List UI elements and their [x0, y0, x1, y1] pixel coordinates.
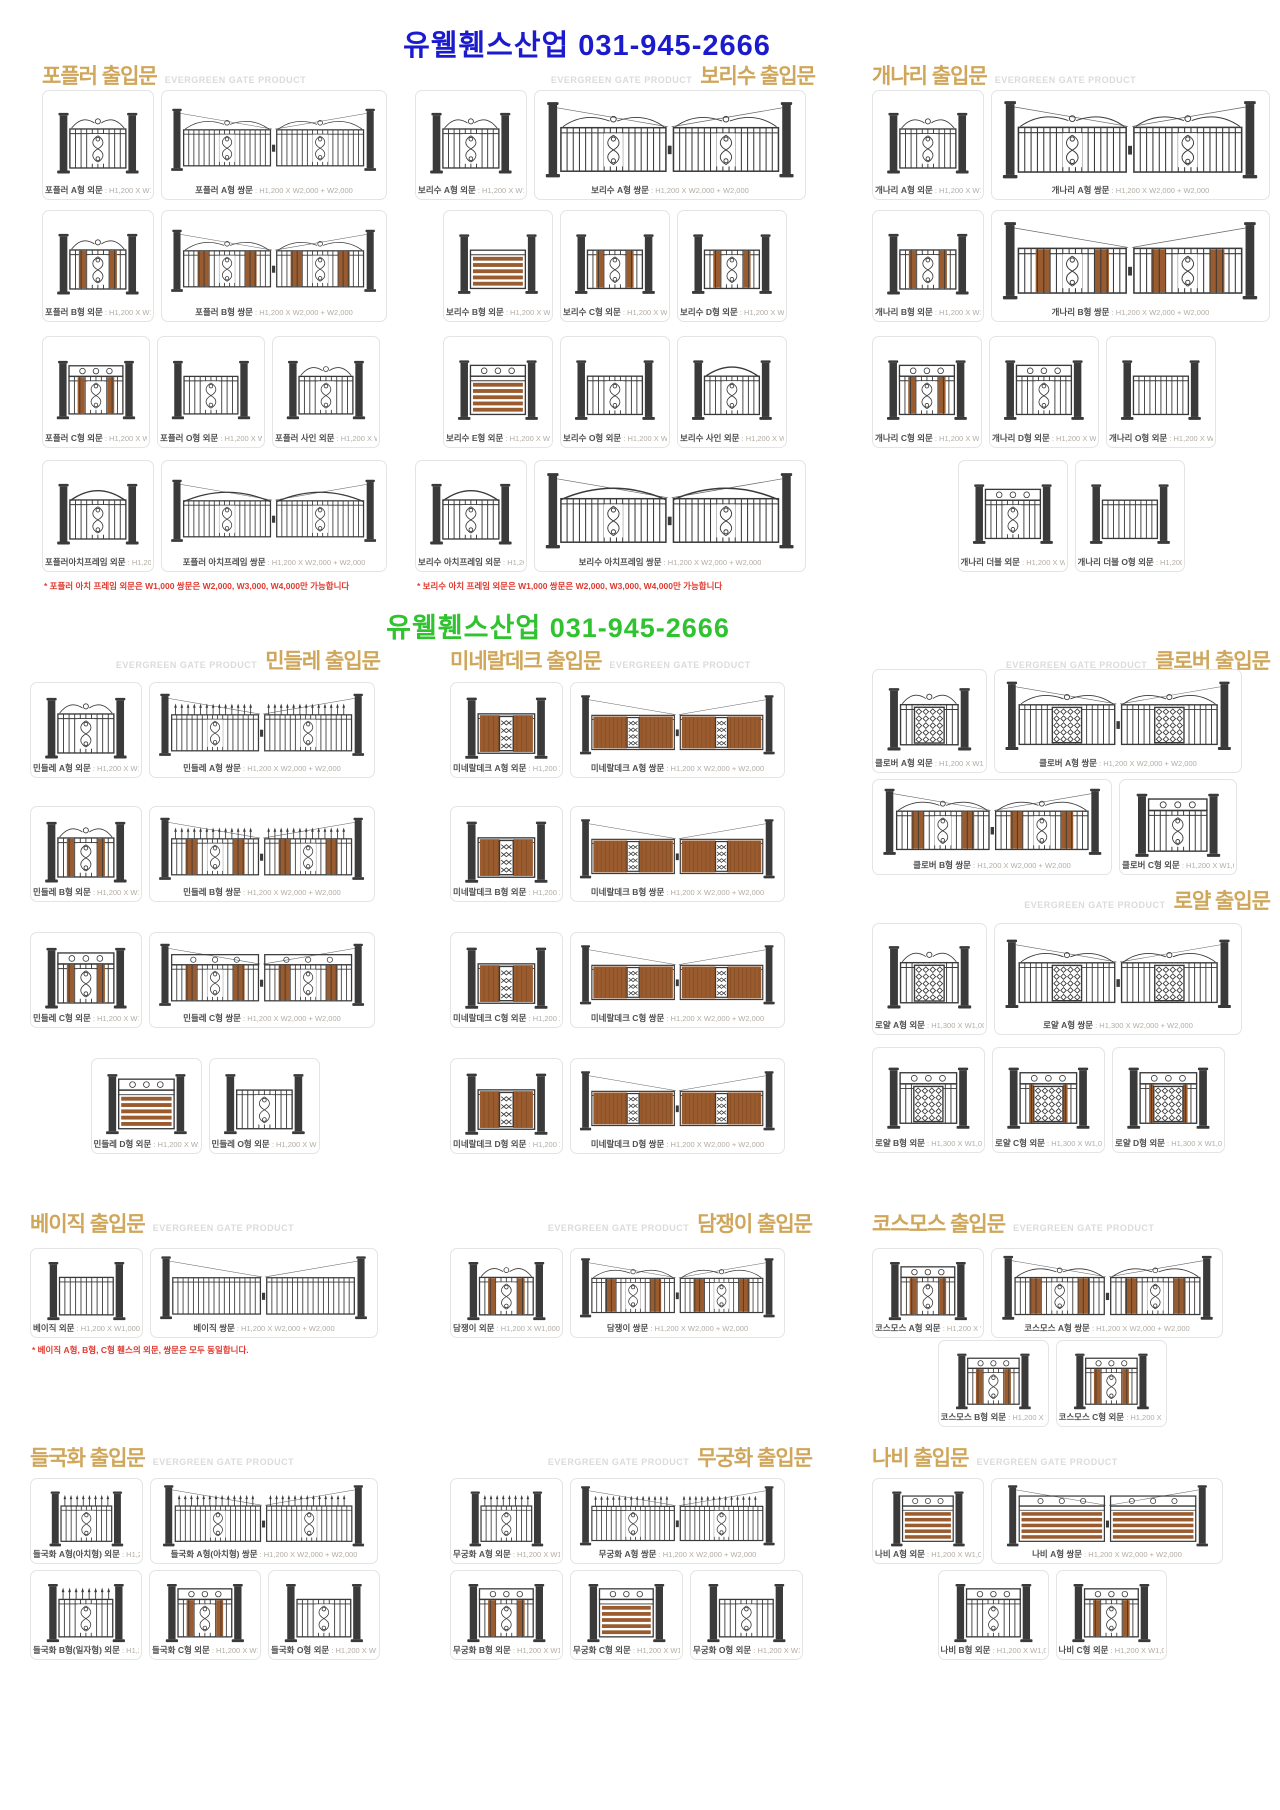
- product-caption: 베이직 외문 : H1,200 X W1,000: [33, 1323, 140, 1334]
- product-card: 담쟁이 외문 : H1,200 X W1,000: [450, 1248, 563, 1338]
- product-card: 미네랄데크 B형 쌍문 : H1,200 X W2,000 + W2,000: [570, 806, 785, 902]
- product-caption: 포플러 O형 외문 : H1,200 X W1,000: [160, 433, 262, 444]
- gate-illustration: [695, 1575, 798, 1645]
- product-caption: 포플러 B형 쌍문 : H1,200 X W2,000 + W2,000: [195, 307, 353, 318]
- product-dimension: : H1,200 X W1,000: [75, 1324, 140, 1333]
- section-header: 개나리 출입문EVERGREEN GATE PRODUCT: [872, 60, 1270, 90]
- product-caption: 개나리 C형 외문 : H1,200 X W1,000: [875, 433, 979, 444]
- gate-drawing: [162, 341, 260, 433]
- product-name: 미네랄데크 B형 쌍문: [591, 887, 664, 897]
- product-dimension: : H1,200 X W2,000 + W2,000: [664, 1014, 764, 1023]
- product-row: 코스모스 A형 외문 : H1,200 X W1,000코스모스 A형 쌍문 :…: [872, 1248, 1232, 1338]
- product-dimension: : H1,200 X W1,000: [103, 186, 151, 195]
- brand-label: EVERGREEN GATE PRODUCT: [548, 1457, 689, 1467]
- gate-drawing: [1111, 341, 1211, 433]
- gate-illustration: [156, 687, 367, 763]
- gate-illustration: [448, 215, 548, 307]
- product-caption: 민들레 A형 외문 : H1,200 X W1,000: [33, 763, 139, 774]
- product-card: 보리수 O형 외문 : H1,200 X W1,000: [560, 336, 670, 448]
- gate-illustration: [1124, 784, 1232, 860]
- product-dimension: : H1,200 X W1,000: [511, 1646, 560, 1655]
- section-title: 들국화 출입문: [30, 1442, 145, 1472]
- product-row: 로얄 A형 외문 : H1,300 X W1,000로얄 A형 쌍문 : H1,…: [872, 923, 1270, 1035]
- gate-illustration: [168, 215, 379, 307]
- catalog-page: 유웰휀스산업 031-945-2666 유웰휀스산업 031-945-2666 …: [0, 0, 1280, 1810]
- product-dimension: : H1,200 X W2,000 + W2,000: [664, 1140, 764, 1149]
- product-card: 보리수 C형 외문 : H1,200 X W1,000: [560, 210, 670, 322]
- gate-illustration: [1061, 1575, 1162, 1645]
- gate-drawing: [156, 687, 367, 763]
- product-dimension: : H1,200 X W2,000 + W2,000: [235, 1324, 335, 1333]
- product-name: 미네랄데크 D형 외문: [453, 1139, 526, 1149]
- gate-illustration: [455, 937, 558, 1013]
- product-card: 보리수 E형 외문 : H1,200 X W1,000: [443, 336, 553, 448]
- product-row: 개나리 B형 외문 : H1,200 X W1,000개나리 B형 쌍문 : H…: [872, 210, 1270, 322]
- gate-drawing: [943, 1345, 1044, 1412]
- product-card: 민들레 C형 외문 : H1,200 X W1,000: [30, 932, 142, 1028]
- section-note: * 베이직 A형, B형, C형 휀스의 외문, 쌍문은 모두 동일합니다.: [32, 1344, 249, 1356]
- gate-drawing: [455, 1253, 558, 1323]
- product-caption: 포플러 사인 외문 : H1,200 X W1,000: [275, 433, 377, 444]
- gate-drawing: [35, 1483, 138, 1549]
- product-row: 클로버 B형 쌍문 : H1,200 X W2,000 + W2,000클로버 …: [872, 779, 1270, 875]
- product-caption: 미네랄데크 C형 외문 : H1,200 X W1,000: [453, 1013, 560, 1024]
- product-card: 클로버 C형 외문 : H1,200 X W1,000: [1119, 779, 1237, 875]
- product-card: 포플러 사인 외문 : H1,200 X W1,000: [272, 336, 380, 448]
- product-name: 베이직 쌍문: [193, 1323, 234, 1333]
- product-name: 들국화 A형(아치형) 외문: [33, 1549, 120, 1559]
- product-name: 포플러 A형 쌍문: [195, 185, 253, 195]
- product-caption: 보리수 O형 외문 : H1,200 X W1,000: [563, 433, 667, 444]
- gate-drawing: [1080, 465, 1180, 557]
- product-row: 로얄 B형 외문 : H1,300 X W1,000로얄 C형 외문 : H1,…: [872, 1047, 1270, 1153]
- product-name: 담쟁이 쌍문: [607, 1323, 648, 1333]
- product-row: 들국화 A형(아치형) 외문 : H1,200 X W1,000들국화 A형(아…: [30, 1478, 380, 1564]
- section-title: 베이직 출입문: [30, 1208, 145, 1238]
- product-row: 무궁화 B형 외문 : H1,200 X W1,000무궁화 C형 외문 : H…: [450, 1570, 812, 1660]
- section-title: 로얄 출입문: [1174, 885, 1270, 915]
- gate-drawing: [577, 1483, 778, 1549]
- gate-drawing: [214, 1063, 315, 1139]
- product-name: 들국화 A형(아치형) 쌍문: [171, 1549, 258, 1559]
- gate-drawing: [877, 674, 982, 758]
- product-dimension: : H1,200 X W2,000 + W2,000: [266, 558, 366, 567]
- product-card: 민들레 A형 외문 : H1,200 X W1,000: [30, 682, 142, 778]
- product-dimension: : H1,200 X W1,000: [91, 764, 139, 773]
- gate-drawing: [1061, 1345, 1162, 1412]
- product-caption: 미네랄데크 D형 쌍문 : H1,200 X W2,000 + W2,000: [591, 1139, 764, 1150]
- gate-drawing: [999, 1253, 1216, 1323]
- gate-drawing: [448, 215, 548, 307]
- product-dimension: : H1,200 X W1,000: [103, 308, 151, 317]
- section-header: 포플러 출입문EVERGREEN GATE PRODUCT: [42, 60, 392, 90]
- product-name: 민들레 D형 외문: [94, 1139, 152, 1149]
- product-card: 나비 A형 쌍문 : H1,200 X W2,000 + W2,000: [991, 1478, 1223, 1564]
- gate-illustration: [455, 811, 558, 887]
- product-name: 개나리 B형 쌍문: [1052, 307, 1110, 317]
- product-card: 민들레 D형 외문 : H1,200 X W1,000: [91, 1058, 202, 1154]
- product-dimension: : H1,200 X W2,000 + W2,000: [1090, 1324, 1190, 1333]
- gate-drawing: [157, 1253, 370, 1323]
- gate-illustration: [542, 95, 797, 185]
- product-name: 로얄 B형 외문: [875, 1138, 925, 1148]
- product-card: 개나리 더블 O형 외문 : H1,200 X W1,000: [1075, 460, 1185, 572]
- product-dimension: : H1,200 X W1,000: [270, 1140, 317, 1149]
- gate-illustration: [420, 465, 522, 557]
- gate-drawing: [1002, 674, 1234, 758]
- product-card: 미네랄데크 C형 쌍문 : H1,200 X W2,000 + W2,000: [570, 932, 785, 1028]
- product-dimension: : H1,200 X W2,000 + W2,000: [662, 558, 762, 567]
- product-card: 무궁화 C형 외문 : H1,200 X W1,000: [570, 1570, 683, 1660]
- gate-drawing: [877, 928, 982, 1020]
- product-name: 개나리 O형 외문: [1109, 433, 1167, 443]
- product-dimension: : H1,200 X W1,000: [933, 308, 981, 317]
- product-card: 개나리 A형 외문 : H1,200 X W1,000: [872, 90, 984, 200]
- product-name: 무궁화 B형 외문: [453, 1645, 511, 1655]
- middle-banner: 유웰휀스산업 031-945-2666: [382, 606, 734, 645]
- section-header: EVERGREEN GATE PRODUCT담쟁이 출입문: [450, 1208, 812, 1238]
- product-card: 민들레 A형 쌍문 : H1,200 X W2,000 + W2,000: [149, 682, 375, 778]
- product-card: 미네랄데크 B형 외문 : H1,200 X W1,000: [450, 806, 563, 902]
- gate-drawing: [455, 1063, 558, 1139]
- product-card: 담쟁이 쌍문 : H1,200 X W2,000 + W2,000: [570, 1248, 785, 1338]
- product-dimension: : H1,200 X W1,000: [504, 308, 550, 317]
- product-caption: 로얄 D형 외문 : H1,300 X W1,000: [1115, 1138, 1222, 1149]
- product-name: 로얄 A형 외문: [875, 1020, 925, 1030]
- brand-label: EVERGREEN GATE PRODUCT: [1013, 1223, 1154, 1233]
- brand-label: EVERGREEN GATE PRODUCT: [116, 660, 257, 670]
- product-row: 나비 A형 외문 : H1,200 X W1,000나비 A형 쌍문 : H1,…: [872, 1478, 1232, 1564]
- gate-drawing: [168, 215, 379, 307]
- product-dimension: : H1,200 X W1,000: [1124, 1413, 1163, 1422]
- section-title: 포플러 출입문: [42, 60, 157, 90]
- gate-illustration: [877, 928, 982, 1020]
- product-row: 담쟁이 외문 : H1,200 X W1,000담쟁이 쌍문 : H1,200 …: [450, 1248, 812, 1338]
- gate-drawing: [35, 1253, 138, 1323]
- gate-drawing: [577, 937, 778, 1013]
- product-card: 미네랄데크 C형 외문 : H1,200 X W1,000: [450, 932, 563, 1028]
- brand-label: EVERGREEN GATE PRODUCT: [995, 75, 1136, 85]
- product-caption: 개나리 O형 외문 : H1,200 X W1,000: [1109, 433, 1213, 444]
- product-row: 나비 B형 외문 : H1,200 X W1,000나비 C형 외문 : H1,…: [872, 1570, 1232, 1660]
- gate-illustration: [577, 811, 778, 887]
- product-name: 보리수 O형 외문: [563, 433, 621, 443]
- product-caption: 보리수 아치프레임 외문 : H1,200 X W1,000: [418, 557, 524, 568]
- product-card: 무궁화 B형 외문 : H1,200 X W1,000: [450, 1570, 563, 1660]
- product-name: 코스모스 C형 외문: [1059, 1412, 1125, 1422]
- product-dimension: : H1,200 X W1,000: [526, 764, 560, 773]
- product-row: 포플러 B형 외문 : H1,200 X W1,000포플러 B형 쌍문 : H…: [42, 210, 392, 322]
- product-card: 보리수 B형 외문 : H1,200 X W1,000: [443, 210, 553, 322]
- product-card: 들국화 A형(아치형) 쌍문 : H1,200 X W2,000 + W2,00…: [150, 1478, 378, 1564]
- gate-illustration: [577, 1483, 778, 1549]
- product-name: 무궁화 O형 외문: [693, 1645, 751, 1655]
- product-name: 보리수 A형 외문: [418, 185, 476, 195]
- product-dimension: : H1,200 X W1,000: [1050, 434, 1096, 443]
- product-name: 민들레 O형 외문: [212, 1139, 270, 1149]
- gate-drawing: [877, 95, 979, 185]
- gate-illustration: [35, 1253, 138, 1323]
- product-card: 미네랄데크 A형 외문 : H1,200 X W1,000: [450, 682, 563, 778]
- product-row: 포플러 C형 외문 : H1,200 X W1,000포플러 O형 외문 : H…: [42, 336, 392, 448]
- product-dimension: : H1,200 X W1,000: [503, 434, 550, 443]
- product-caption: 보리수 사인 외문 : H1,200 X W1,000: [680, 433, 784, 444]
- section-header: 들국화 출입문EVERGREEN GATE PRODUCT: [30, 1442, 380, 1472]
- product-card: 포플러 C형 외문 : H1,200 X W1,000: [42, 336, 150, 448]
- product-card: 미네랄데크 D형 외문 : H1,200 X W1,000: [450, 1058, 563, 1154]
- product-dimension: : H1,200 X W1,000: [526, 1140, 560, 1149]
- gate-drawing: [1002, 928, 1234, 1020]
- product-dimension: : H1,200 X W2,000 + W2,000: [1109, 308, 1209, 317]
- gate-drawing: [420, 95, 522, 185]
- product-row: 보리수 E형 외문 : H1,200 X W1,000보리수 O형 외문 : H…: [415, 336, 815, 448]
- section-header: 미네랄데크 출입문EVERGREEN GATE PRODUCT: [450, 645, 812, 675]
- product-name: 보리수 B형 외문: [446, 307, 504, 317]
- top-banner: 유웰휀스산업 031-945-2666: [375, 22, 799, 64]
- gate-illustration: [47, 215, 149, 307]
- section-title: 민들레 출입문: [265, 645, 380, 675]
- product-name: 로얄 D형 외문: [1115, 1138, 1165, 1148]
- brand-label: EVERGREEN GATE PRODUCT: [1024, 900, 1165, 910]
- product-name: 개나리 더블 O형 외문: [1078, 557, 1154, 567]
- product-caption: 포플러 A형 외문 : H1,200 X W1,000: [45, 185, 151, 196]
- section-title: 개나리 출입문: [872, 60, 987, 90]
- product-caption: 미네랄데크 A형 쌍문 : H1,200 X W2,000 + W2,000: [591, 763, 764, 774]
- section-title: 무궁화 출입문: [697, 1442, 812, 1472]
- product-card: 보리수 A형 쌍문 : H1,200 X W2,000 + W2,000: [534, 90, 806, 200]
- product-name: 보리수 아치프레임 외문: [418, 557, 501, 567]
- gate-illustration: [455, 1483, 558, 1549]
- product-name: 코스모스 B형 외문: [941, 1412, 1007, 1422]
- brand-label: EVERGREEN GATE PRODUCT: [609, 660, 750, 670]
- product-caption: 담쟁이 쌍문 : H1,200 X W2,000 + W2,000: [607, 1323, 748, 1334]
- section-header: EVERGREEN GATE PRODUCT보리수 출입문: [415, 60, 815, 90]
- gate-illustration: [35, 1483, 138, 1549]
- gate-illustration: [880, 784, 1105, 860]
- gate-illustration: [877, 1483, 979, 1549]
- gate-drawing: [877, 341, 977, 433]
- product-caption: 개나리 D형 외문 : H1,200 X W1,000: [992, 433, 1096, 444]
- product-name: 포플러 C형 외문: [45, 433, 103, 443]
- gate-illustration: [999, 1253, 1216, 1323]
- product-caption: 무궁화 C형 외문 : H1,200 X W1,000: [573, 1645, 680, 1656]
- gate-illustration: [96, 1063, 197, 1139]
- gate-illustration: [577, 937, 778, 1013]
- product-row: 무궁화 A형 외문 : H1,200 X W1,000무궁화 A형 쌍문 : H…: [450, 1478, 812, 1564]
- product-name: 개나리 D형 외문: [992, 433, 1050, 443]
- section-note: * 포플러 아치 프레임 외문은 W1,000 쌍문은 W2,000, W3,0…: [44, 580, 349, 592]
- gate-drawing: [1117, 1052, 1220, 1138]
- gate-illustration: [999, 95, 1261, 185]
- gate-drawing: [420, 465, 522, 557]
- gate-drawing: [277, 341, 375, 433]
- product-row: 포플러 A형 외문 : H1,200 X W1,000포플러 A형 쌍문 : H…: [42, 90, 392, 200]
- product-name: 민들레 C형 외문: [33, 1013, 91, 1023]
- product-name: 미네랄데크 C형 외문: [453, 1013, 526, 1023]
- product-dimension: : H1,200 X W1,000: [739, 434, 784, 443]
- product-name: 민들레 A형 쌍문: [183, 763, 241, 773]
- product-card: 보리수 A형 외문 : H1,200 X W1,000: [415, 90, 527, 200]
- product-caption: 보리수 B형 외문 : H1,200 X W1,000: [446, 307, 550, 318]
- section-header: 나비 출입문EVERGREEN GATE PRODUCT: [872, 1442, 1232, 1472]
- product-dimension: : H1,200 X W1,000: [218, 434, 262, 443]
- product-card: 들국화 A형(아치형) 외문 : H1,200 X W1,000: [30, 1478, 143, 1564]
- product-name: 포플러 A형 외문: [45, 185, 103, 195]
- gate-illustration: [877, 674, 982, 758]
- product-dimension: : H1,200 X W1,000: [941, 1324, 981, 1333]
- gate-drawing: [273, 1575, 375, 1645]
- product-name: 개나리 A형 쌍문: [1052, 185, 1110, 195]
- gate-drawing: [682, 341, 782, 433]
- product-dimension: : H1,300 X W1,000: [925, 1021, 984, 1030]
- product-card: 무궁화 A형 쌍문 : H1,200 X W2,000 + W2,000: [570, 1478, 785, 1564]
- product-caption: 클로버 A형 쌍문 : H1,200 X W2,000 + W2,000: [1039, 758, 1197, 769]
- product-row: 민들레 A형 외문 : H1,200 X W1,000민들레 A형 쌍문 : H…: [30, 682, 380, 778]
- product-caption: 무궁화 A형 쌍문 : H1,200 X W2,000 + W2,000: [599, 1549, 757, 1560]
- product-dimension: : H1,200 X W1,000: [933, 759, 984, 768]
- product-caption: 민들레 A형 쌍문 : H1,200 X W2,000 + W2,000: [183, 763, 341, 774]
- product-name: 포플러아치프레임 외문: [45, 557, 126, 567]
- gate-drawing: [999, 1483, 1216, 1549]
- product-name: 클로버 B형 쌍문: [913, 860, 971, 870]
- product-card: 나비 B형 외문 : H1,200 X W1,000: [938, 1570, 1049, 1660]
- product-name: 코스모스 A형 쌍문: [1024, 1323, 1090, 1333]
- product-name: 포플러 사인 외문: [275, 433, 334, 443]
- product-caption: 무궁화 O형 외문 : H1,200 X W1,000: [693, 1645, 800, 1656]
- gate-drawing: [577, 811, 778, 887]
- product-dimension: : H1,200 X W2,000 + W2,000: [664, 764, 764, 773]
- product-name: 무궁화 A형 외문: [453, 1549, 511, 1559]
- product-row: 민들레 C형 외문 : H1,200 X W1,000민들레 C형 쌍문 : H…: [30, 932, 380, 1028]
- product-dimension: : H1,200 X W1,000: [103, 434, 147, 443]
- product-card: 개나리 O형 외문 : H1,200 X W1,000: [1106, 336, 1216, 448]
- product-caption: 로얄 B형 외문 : H1,300 X W1,000: [875, 1138, 982, 1149]
- product-card: 포플러 B형 쌍문 : H1,200 X W2,000 + W2,000: [161, 210, 387, 322]
- product-card: 무궁화 O형 외문 : H1,200 X W1,000: [690, 1570, 803, 1660]
- gate-illustration: [455, 1253, 558, 1323]
- product-dimension: : H1,300 X W2,000 + W2,000: [1093, 1021, 1193, 1030]
- product-dimension: : H1,200 X W1,000: [933, 186, 981, 195]
- product-name: 미네랄데크 A형 쌍문: [591, 763, 664, 773]
- product-row: 베이직 외문 : H1,200 X W1,000베이직 쌍문 : H1,200 …: [30, 1248, 380, 1338]
- product-dimension: : H1,200 X W1,000: [511, 1550, 560, 1559]
- brand-label: EVERGREEN GATE PRODUCT: [153, 1223, 294, 1233]
- product-caption: 코스모스 C형 외문 : H1,200 X W1,000: [1059, 1412, 1164, 1423]
- product-card: 포플러 A형 외문 : H1,200 X W1,000: [42, 90, 154, 200]
- product-caption: 민들레 B형 쌍문 : H1,200 X W2,000 + W2,000: [183, 887, 341, 898]
- product-caption: 미네랄데크 A형 외문 : H1,200 X W1,000: [453, 763, 560, 774]
- product-card: 포플러 아치프레임 쌍문 : H1,200 X W2,000 + W2,000: [161, 460, 387, 572]
- gate-drawing: [877, 215, 979, 307]
- product-caption: 민들레 C형 외문 : H1,200 X W1,000: [33, 1013, 139, 1024]
- product-name: 민들레 A형 외문: [33, 763, 91, 773]
- product-row: 보리수 A형 외문 : H1,200 X W1,000보리수 A형 쌍문 : H…: [415, 90, 815, 200]
- gate-drawing: [877, 1052, 980, 1138]
- gate-illustration: [999, 215, 1261, 307]
- gate-drawing: [157, 1483, 370, 1549]
- product-name: 베이직 외문: [33, 1323, 74, 1333]
- gate-drawing: [168, 465, 379, 557]
- product-name: 포플러 O형 외문: [160, 433, 218, 443]
- product-dimension: : H1,200 X W2,000 + W2,000: [664, 888, 764, 897]
- gate-drawing: [154, 1575, 256, 1645]
- product-card: 로얄 C형 외문 : H1,300 X W1,000: [992, 1047, 1105, 1153]
- gate-illustration: [420, 95, 522, 185]
- product-caption: 베이직 쌍문 : H1,200 X W2,000 + W2,000: [193, 1323, 334, 1334]
- gate-drawing: [168, 95, 379, 185]
- product-card: 민들레 B형 외문 : H1,200 X W1,000: [30, 806, 142, 902]
- product-name: 민들레 B형 외문: [33, 887, 91, 897]
- gate-drawing: [695, 1575, 798, 1645]
- product-dimension: : H1,200 X W1,000: [151, 1140, 198, 1149]
- gate-illustration: [455, 1063, 558, 1139]
- section-header: EVERGREEN GATE PRODUCT무궁화 출입문: [450, 1442, 812, 1472]
- product-dimension: : H1,200 X W2,000 + W2,000: [648, 1324, 748, 1333]
- section-title: 담쟁이 출입문: [697, 1208, 812, 1238]
- product-name: 보리수 사인 외문: [680, 433, 739, 443]
- product-name: 무궁화 A형 쌍문: [599, 1549, 657, 1559]
- gate-illustration: [35, 1575, 137, 1645]
- product-dimension: : H1,200 X W1,000: [631, 1646, 680, 1655]
- product-name: 보리수 아치프레임 쌍문: [579, 557, 662, 567]
- gate-illustration: [1002, 674, 1234, 758]
- product-dimension: : H1,200 X W1,000: [621, 434, 667, 443]
- gate-drawing: [455, 1483, 558, 1549]
- product-card: 포플러 O형 외문 : H1,200 X W1,000: [157, 336, 265, 448]
- gate-illustration: [877, 1052, 980, 1138]
- product-caption: 들국화 O형 외문 : H1,200 X W1,000: [271, 1645, 377, 1656]
- product-dimension: : H1,200 X W1,000: [91, 1014, 139, 1023]
- product-caption: 개나리 더블 O형 외문 : H1,200 X W1,000: [1078, 557, 1182, 568]
- product-caption: 포플러아치프레임 외문 : H1,200 X W1,000: [45, 557, 151, 568]
- product-dimension: : H1,300 X W1,000: [1045, 1139, 1102, 1148]
- section-header: 코스모스 출입문EVERGREEN GATE PRODUCT: [872, 1208, 1232, 1238]
- product-dimension: : H1,200 X W1,000: [1006, 1413, 1045, 1422]
- product-name: 포플러 B형 쌍문: [195, 307, 253, 317]
- gate-drawing: [35, 937, 137, 1013]
- section-header: EVERGREEN GATE PRODUCT로얄 출입문: [872, 885, 1270, 915]
- product-name: 포플러 B형 외문: [45, 307, 103, 317]
- section-title: 코스모스 출입문: [872, 1208, 1005, 1238]
- gate-illustration: [943, 1575, 1044, 1645]
- product-caption: 민들레 B형 외문 : H1,200 X W1,000: [33, 887, 139, 898]
- product-dimension: : H1,300 X W1,000: [925, 1139, 982, 1148]
- product-dimension: : H1,200 X W1,000: [334, 434, 377, 443]
- gate-illustration: [877, 1253, 979, 1323]
- product-caption: 포플러 B형 외문 : H1,200 X W1,000: [45, 307, 151, 318]
- product-row: 미네랄데크 C형 외문 : H1,200 X W1,000미네랄데크 C형 쌍문…: [450, 932, 812, 1028]
- product-name: 민들레 C형 쌍문: [183, 1013, 241, 1023]
- product-dimension: : H1,200 X W2,000 + W2,000: [1082, 1550, 1182, 1559]
- product-dimension: : H1,200 X W1,000: [990, 1646, 1045, 1655]
- gate-illustration: [273, 1575, 375, 1645]
- product-row: 포플러아치프레임 외문 : H1,200 X W1,000포플러 아치프레임 쌍…: [42, 460, 392, 572]
- section-title: 보리수 출입문: [700, 60, 815, 90]
- gate-illustration: [877, 95, 979, 185]
- product-name: 클로버 A형 쌍문: [1039, 758, 1097, 768]
- gate-illustration: [455, 687, 558, 763]
- product-caption: 무궁화 B형 외문 : H1,200 X W1,000: [453, 1645, 560, 1656]
- product-caption: 코스모스 A형 쌍문 : H1,200 X W2,000 + W2,000: [1024, 1323, 1189, 1334]
- product-dimension: : H1,200 X W1,000: [120, 1646, 139, 1655]
- product-caption: 로얄 A형 외문 : H1,300 X W1,000: [875, 1020, 984, 1031]
- product-row: 개나리 더블 외문 : H1,200 X W1,000개나리 더블 O형 외문 …: [872, 460, 1270, 572]
- product-caption: 미네랄데크 D형 외문 : H1,200 X W1,000: [453, 1139, 560, 1150]
- product-dimension: : H1,200 X W2,000 + W2,000: [241, 764, 341, 773]
- product-card: 보리수 사인 외문 : H1,200 X W1,000: [677, 336, 787, 448]
- product-row: 클로버 A형 외문 : H1,200 X W1,000클로버 A형 쌍문 : H…: [872, 669, 1270, 773]
- product-card: 로얄 A형 쌍문 : H1,300 X W2,000 + W2,000: [994, 923, 1242, 1035]
